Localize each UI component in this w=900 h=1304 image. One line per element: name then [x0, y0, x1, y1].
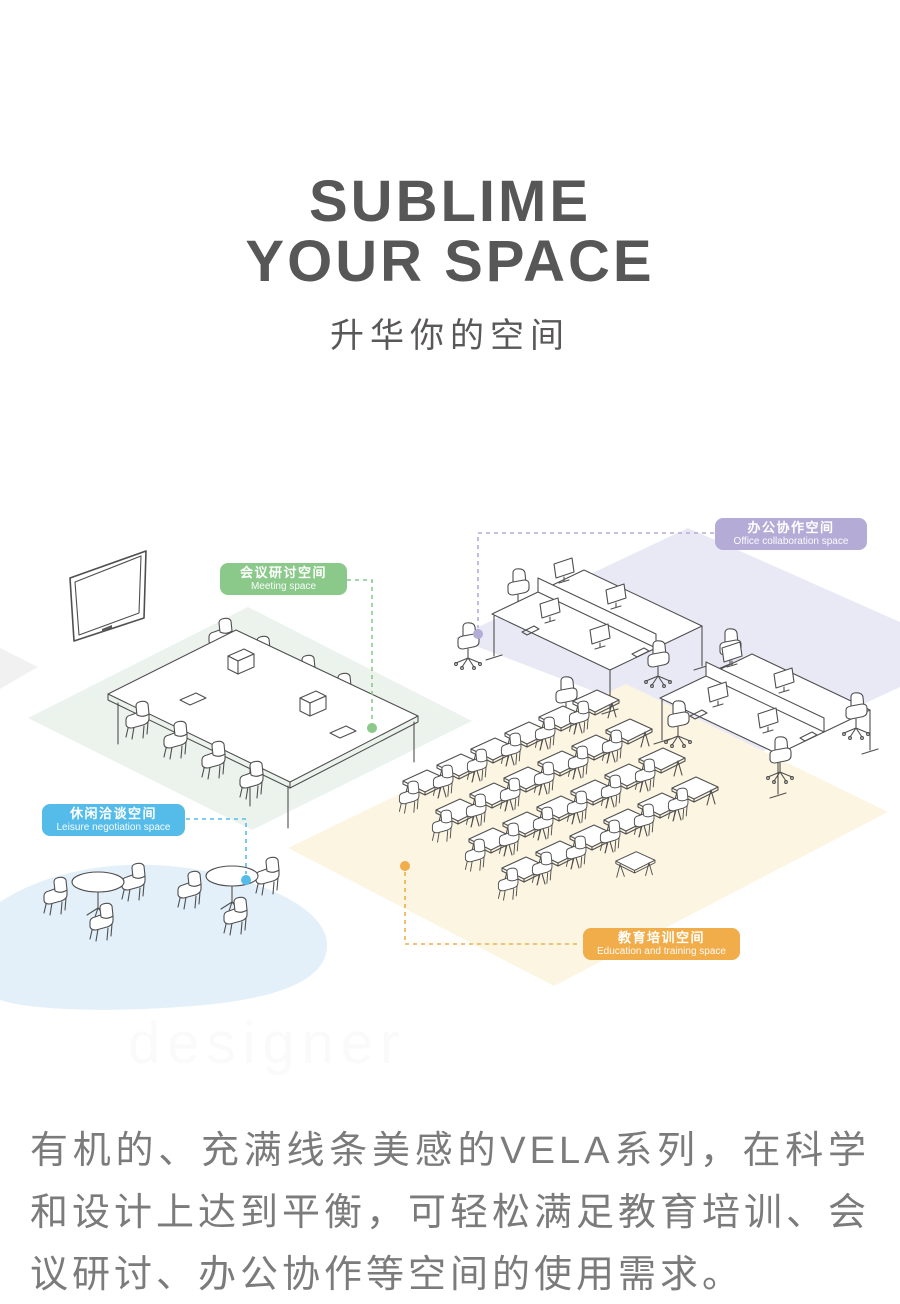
education-space-label: 教育培训空间 Education and training space [583, 928, 740, 960]
meeting-space-label-cn: 会议研讨空间 [224, 565, 343, 581]
office-dot [473, 629, 483, 639]
meeting-space-label-en: Meeting space [224, 581, 343, 592]
education-dot [400, 861, 410, 871]
title-line-1: SUBLIME [309, 169, 591, 234]
office-space-label-cn: 办公协作空间 [719, 520, 863, 536]
space-illustration: 会议研讨空间 Meeting space 办公协作空间 Office colla… [0, 495, 900, 1020]
leisure-floor-blob [0, 865, 327, 1010]
education-space-label-en: Education and training space [587, 946, 736, 957]
leisure-dot [241, 875, 251, 885]
product-description: 有机的、充满线条美感的VELA系列，在科学和设计上达到平衡，可轻松满足教育培训、… [30, 1120, 870, 1304]
meeting-space-label: 会议研讨空间 Meeting space [220, 563, 347, 595]
leisure-space-label: 休闲洽谈空间 Leisure negotiation space [42, 804, 185, 836]
office-space-label-en: Office collaboration space [719, 536, 863, 547]
page-title: SUBLIME YOUR SPACE [0, 172, 900, 292]
page-subtitle: 升华你的空间 [0, 308, 900, 357]
education-space-label-cn: 教育培训空间 [587, 930, 736, 946]
isometric-scene [0, 495, 900, 1020]
office-space-label: 办公协作空间 Office collaboration space [715, 518, 867, 550]
leisure-space-label-cn: 休闲洽谈空间 [46, 806, 181, 822]
designer-watermark: designer [128, 1010, 406, 1077]
leisure-space-label-en: Leisure negotiation space [46, 822, 181, 833]
product-detail-page: SUBLIME YOUR SPACE 升华你的空间 [0, 0, 900, 1304]
meeting-dot [367, 723, 377, 733]
misc-floor-wedge [0, 648, 38, 689]
title-line-2: YOUR SPACE [245, 229, 654, 294]
